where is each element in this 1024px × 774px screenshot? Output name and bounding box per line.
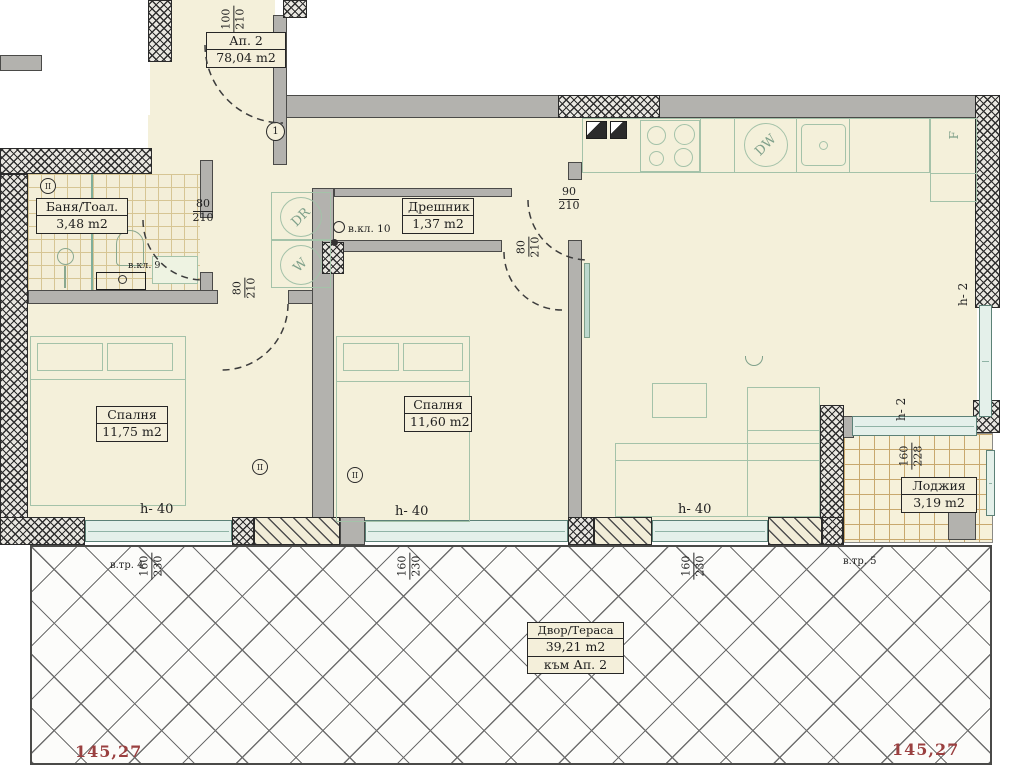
sill-height-right: h- 40: [678, 502, 711, 517]
window-bottom-left: [85, 520, 232, 542]
washer-icon: W: [280, 245, 322, 285]
bedroom1-area: 11,75 m2: [97, 424, 167, 440]
bath-area: 3,48 m2: [37, 216, 127, 232]
note-vkl10: в.кл. 10: [348, 223, 391, 235]
oven-icon: [586, 121, 607, 139]
floor-plan-canvas: DR W DW F: [0, 0, 1024, 774]
dim-entry-h: 210: [234, 6, 247, 33]
washer-label: W: [291, 255, 311, 275]
burner-icon: [647, 126, 666, 145]
dim-bedroom2-door: 80210: [510, 226, 546, 268]
pillow: [403, 343, 463, 371]
hatch-entry-vertical: [148, 0, 172, 62]
pier-diagonal-2: [594, 517, 652, 545]
hatch-left-wall: [0, 174, 28, 520]
hatch-bottomleft-corner: [0, 517, 85, 545]
dim-bed2-h: 210: [529, 234, 542, 261]
dim-bath-w: 80: [193, 198, 213, 212]
bedroom2-name: Спалня: [405, 397, 471, 414]
apartment-area: 78,04 m2: [207, 50, 285, 66]
bedroom2-label-box: Спалня 11,60 m2: [404, 396, 472, 432]
window-bottom-right: [652, 520, 768, 542]
marker-wall-label: II: [45, 182, 51, 191]
marker-entry-circle: 1: [266, 122, 285, 141]
railing-right: [979, 305, 992, 417]
dim-kitchen-h: 210: [556, 200, 583, 213]
hatch-pier1: [232, 517, 254, 545]
wall-loggia-corner: [948, 512, 976, 540]
sink-pedestal: [64, 266, 66, 288]
burner-icon: [649, 151, 664, 166]
terrace-note: към Ап. 2: [528, 657, 623, 673]
dishwasher-icon: DW: [744, 123, 788, 167]
wall-bath-bottom: [28, 290, 218, 304]
marker-wall-bath: II: [40, 178, 56, 194]
counter-divider-4: [849, 118, 850, 173]
bath-label-box: Баня/Тоал. 3,48 m2: [36, 198, 128, 234]
wall-bath-right-lower: [200, 272, 213, 292]
dim-winM-h: 230: [410, 553, 423, 580]
fridge-icon: F: [947, 131, 961, 139]
marker-wall-bedroom1: II: [252, 459, 268, 475]
hatch-pier3: [822, 517, 843, 545]
loggia-area: 3,19 m2: [902, 495, 976, 511]
dishwasher-label: DW: [752, 131, 779, 158]
bed-fold-line: [31, 379, 185, 380]
note-vtr5: в.тр. 5: [843, 556, 876, 567]
marker-wall-label: II: [257, 463, 263, 472]
fridge-divider: [931, 173, 976, 174]
sink-icon: [57, 248, 74, 265]
note-vkl9: в.кл. 9: [128, 260, 160, 271]
wall-kitchen-jamb: [568, 162, 582, 180]
radiator-living: [584, 263, 590, 338]
dim-winR-w: 160: [680, 553, 694, 580]
dim-loggia-w: 160: [898, 443, 912, 470]
bath-name: Баня/Тоал.: [37, 199, 127, 216]
counter-divider-1: [700, 118, 701, 173]
counter-divider-2: [734, 118, 735, 173]
bed-fold-line: [337, 381, 469, 382]
pillow: [107, 343, 173, 371]
marker-wall-label: II: [352, 471, 358, 480]
microwave-icon: [610, 121, 627, 139]
sofa-chaise: [747, 387, 820, 517]
dim-bed1-w: 80: [231, 278, 245, 298]
marker-vkl10-circle: [333, 221, 345, 233]
closet-name: Дрешник: [403, 199, 473, 216]
sill-height-left: h- 40: [140, 502, 173, 517]
hatch-top-kitchen: [558, 95, 660, 118]
pier-diagonal-1: [254, 517, 340, 545]
pillow: [343, 343, 399, 371]
dim-entry-w: 100: [220, 6, 234, 33]
dim-winR-h: 230: [694, 553, 707, 580]
bedroom2-area: 11,60 m2: [405, 414, 471, 430]
wall-stub-topleft: [0, 55, 42, 71]
marker-wall-bedroom2: II: [347, 467, 363, 483]
dim-bedroom1-door: 80210: [226, 268, 262, 308]
pillow: [37, 343, 103, 371]
dim-loggia-window: 160228: [893, 428, 929, 484]
dryer-box: DR: [271, 192, 331, 240]
dim-window-mid: 160230: [392, 540, 426, 592]
dim-bed1-h: 210: [245, 275, 258, 302]
bedroom1-name: Спалня: [97, 407, 167, 424]
dryer-icon: DR: [280, 197, 322, 237]
hatch-topleft-horizontal: [0, 148, 152, 174]
window-bottom-mid: [365, 520, 568, 542]
fridge-column: F: [930, 118, 977, 202]
wall-bedroom2-right: [568, 240, 582, 520]
wall-closet-top: [334, 188, 512, 197]
terrace-label-box: Двор/Тераса 39,21 m2 към Ап. 2: [527, 622, 624, 674]
railing-loggia-right: [986, 450, 995, 516]
dim-bath-door: 80210: [186, 198, 220, 224]
sofa-back-line: [748, 430, 819, 431]
terrace-name: Двор/Тераса: [528, 623, 623, 639]
dim-winM-w: 160: [396, 553, 410, 580]
terrace-area: [30, 545, 992, 765]
dim-window-right: 160230: [676, 540, 710, 592]
terrace-area: 39,21 m2: [528, 639, 623, 656]
burner-icon: [674, 124, 695, 145]
hatch-pier2: [568, 517, 594, 545]
closet-label-box: Дрешник 1,37 m2: [402, 198, 474, 234]
pier-diagonal-3: [768, 517, 822, 545]
note-vtr4: в.тр. 4: [110, 560, 143, 571]
marker-entry-label: 1: [272, 126, 278, 137]
closet-area: 1,37 m2: [403, 216, 473, 232]
stove: [640, 120, 700, 172]
coffee-table: [652, 383, 707, 418]
bedroom1-label-box: Спалня 11,75 m2: [96, 406, 168, 442]
washer-box: W: [271, 240, 331, 288]
shower-drain-icon: [118, 275, 127, 284]
wall-closet-bottom: [322, 240, 502, 252]
hatch-right-wall: [975, 95, 1000, 308]
hatch-top-entry: [283, 0, 307, 18]
level-mark-right: 145,27: [892, 740, 959, 759]
sill-height-mid: h- 40: [395, 504, 428, 519]
rail-height-1: h- 2: [956, 262, 970, 306]
rail-height-2: h- 2: [894, 377, 908, 421]
dim-bed2-w: 80: [515, 237, 529, 257]
dim-winL-h: 230: [152, 553, 165, 580]
dim-kitchen-w: 90: [559, 186, 579, 200]
burner-icon: [674, 148, 693, 167]
dim-entry-door: 100210: [213, 0, 253, 38]
outside-patch: [0, 62, 148, 148]
dryer-label: DR: [289, 205, 314, 230]
dim-kitchen-door: 90210: [552, 186, 586, 212]
dim-bath-h: 210: [190, 212, 217, 225]
marker-vkl10-dot: [331, 239, 338, 246]
level-mark-left: 145,27: [75, 742, 142, 761]
kitchen-sink-drain: [819, 141, 828, 150]
dim-loggia-h: 228: [912, 443, 925, 470]
counter-divider-3: [796, 118, 797, 173]
